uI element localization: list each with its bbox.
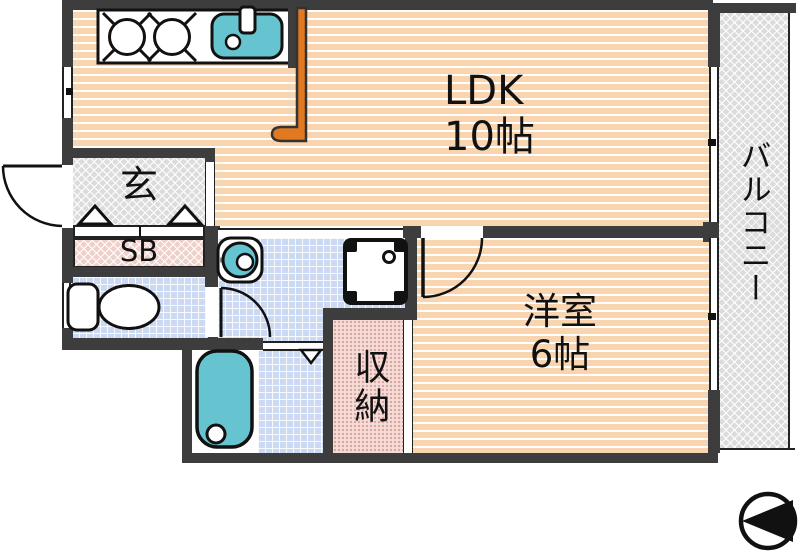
washbasin: [218, 238, 262, 282]
western-room-size: 6帖: [500, 334, 620, 377]
shoe-box-label: SB: [73, 235, 205, 268]
entrance-step-arrows: [79, 206, 201, 224]
toilet-door: [221, 288, 270, 337]
ldk-name: LDK: [444, 68, 535, 114]
washing-machine-pan: [345, 240, 406, 303]
storage-label: 収納: [348, 348, 389, 426]
entrance-door: [3, 166, 62, 226]
compass: [741, 494, 795, 548]
floor-plan: LDK 10帖 洋室 6帖 玄 SB 収納 バルコニー: [0, 0, 802, 553]
ldk-label: LDK 10帖: [444, 68, 535, 160]
bath-folding-door: [301, 350, 321, 363]
bathtub: [197, 351, 252, 447]
kitchen-sink: [212, 7, 282, 58]
ldk-size: 10帖: [444, 114, 535, 160]
western-room-door: [423, 238, 482, 297]
toilet: [68, 284, 159, 330]
fixtures-layer: [0, 0, 802, 553]
western-room-label: 洋室 6帖: [500, 291, 620, 376]
entrance-label: 玄: [120, 164, 158, 208]
western-room-name: 洋室: [500, 291, 620, 334]
balcony-label: バルコニー: [734, 140, 770, 305]
